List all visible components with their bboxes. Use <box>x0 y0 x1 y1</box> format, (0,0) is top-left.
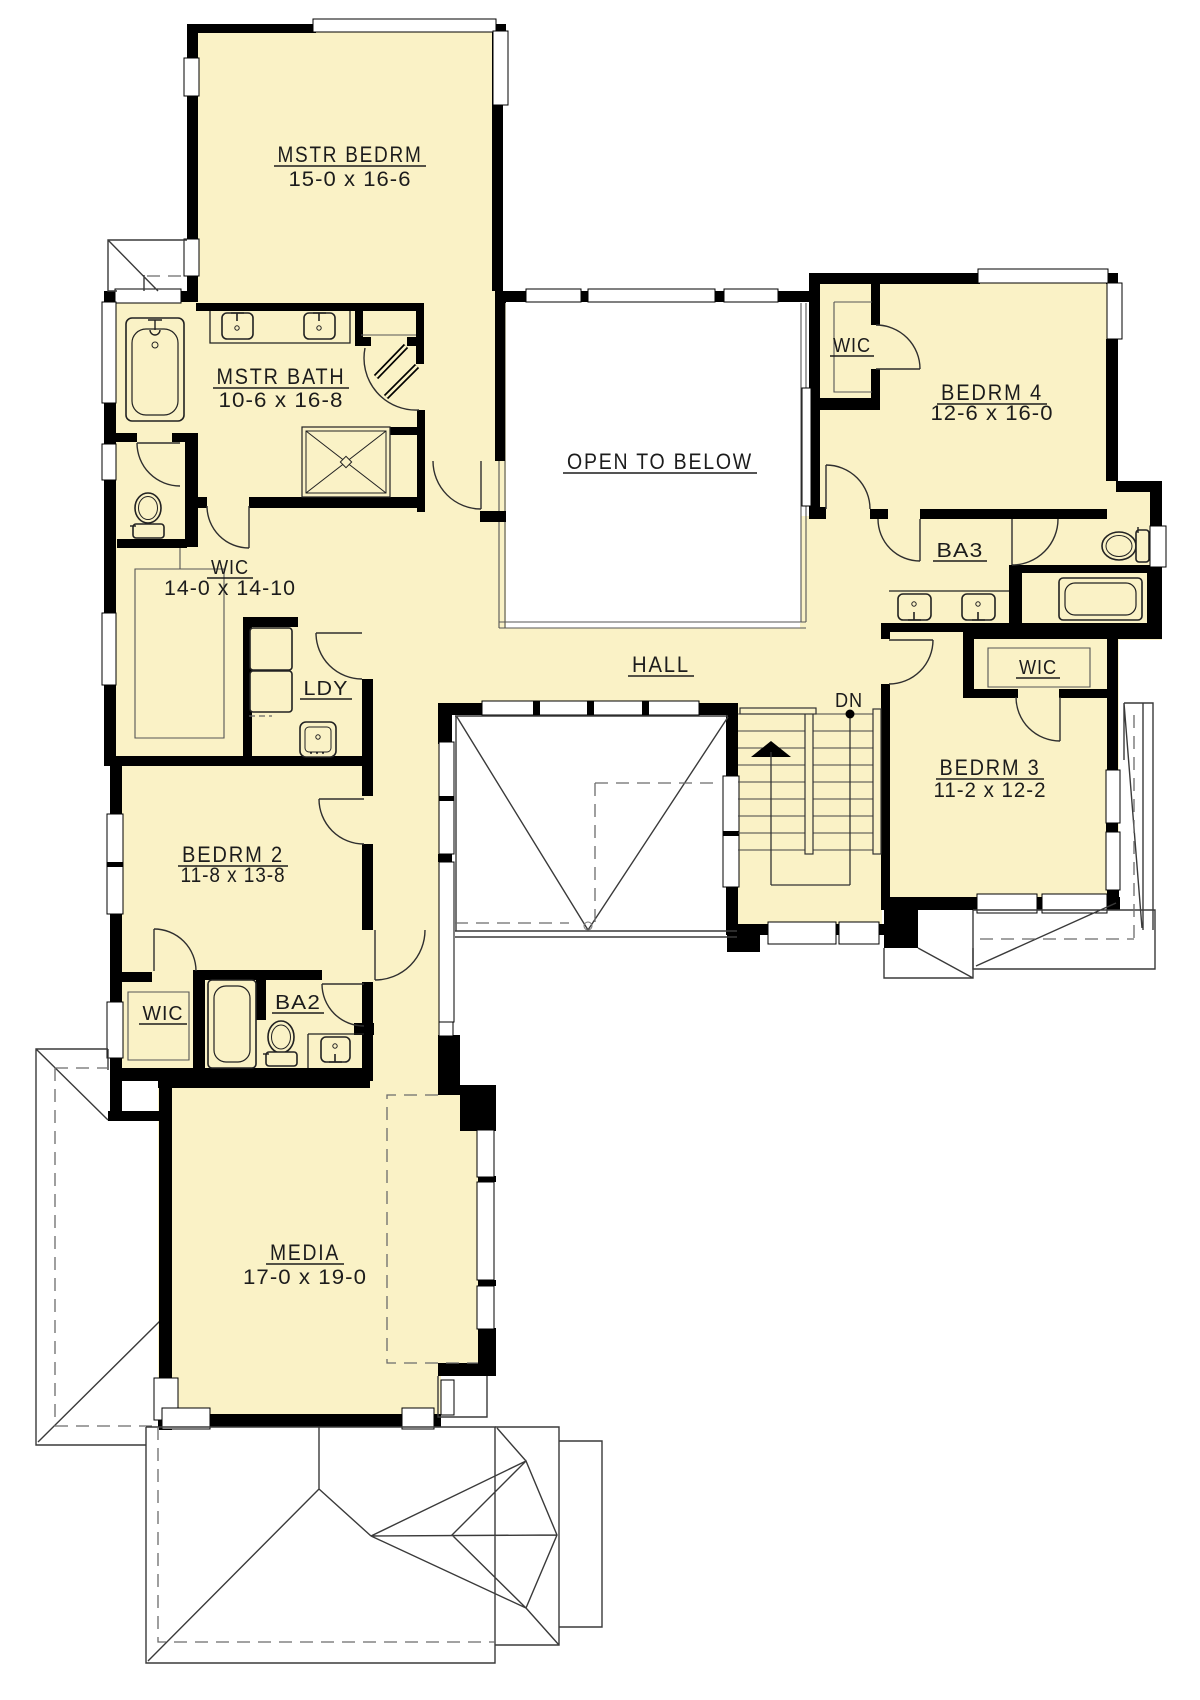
svg-text:BA3: BA3 <box>937 540 984 562</box>
svg-text:10-6 x 16-8: 10-6 x 16-8 <box>219 389 344 412</box>
svg-text:BA2: BA2 <box>275 992 321 1014</box>
svg-text:WIC: WIC <box>1019 657 1057 679</box>
svg-text:MEDIA: MEDIA <box>270 1240 340 1265</box>
svg-text:12-6 x 16-0: 12-6 x 16-0 <box>931 402 1054 425</box>
svg-text:WIC: WIC <box>143 1003 184 1025</box>
svg-text:14-0 x 14-10: 14-0 x 14-10 <box>164 577 296 600</box>
svg-text:11-8 x 13-8: 11-8 x 13-8 <box>181 864 286 887</box>
svg-text:MSTR BEDRM: MSTR BEDRM <box>278 142 423 167</box>
svg-text:OPEN TO BELOW: OPEN TO BELOW <box>567 449 753 474</box>
svg-text:15-0 x 16-6: 15-0 x 16-6 <box>289 168 412 191</box>
svg-text:WIC: WIC <box>211 557 249 579</box>
svg-text:LDY: LDY <box>304 678 349 700</box>
svg-text:HALL: HALL <box>632 652 690 677</box>
svg-text:MSTR BATH: MSTR BATH <box>217 364 346 389</box>
svg-text:WIC: WIC <box>833 335 871 357</box>
svg-text:DN: DN <box>835 690 863 712</box>
svg-text:11-2 x 12-2: 11-2 x 12-2 <box>934 779 1047 802</box>
svg-text:17-0 x 19-0: 17-0 x 19-0 <box>243 1266 367 1289</box>
svg-text:BEDRM 3: BEDRM 3 <box>940 755 1041 780</box>
